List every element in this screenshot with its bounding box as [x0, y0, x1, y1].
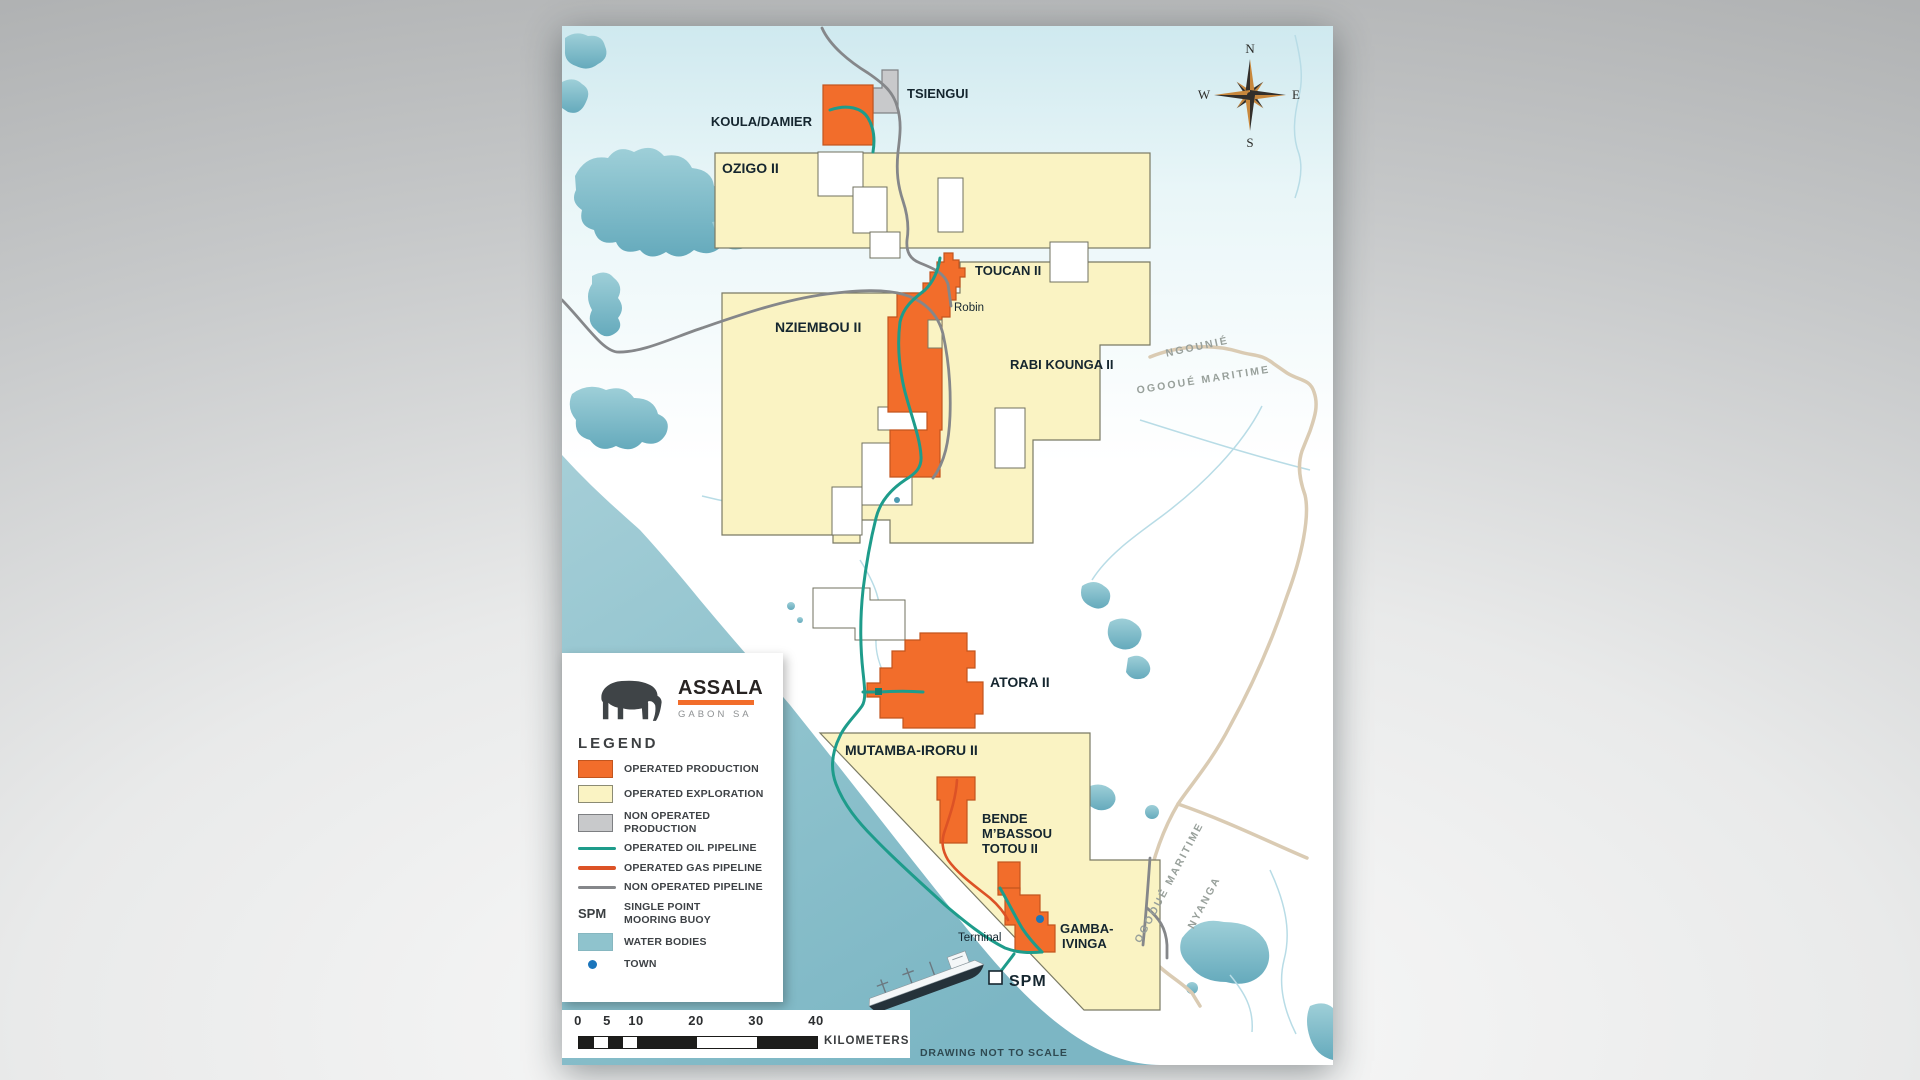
label-gamba-1: GAMBA-: [1060, 921, 1113, 936]
block-ozigo-ii: [715, 153, 1150, 248]
label-ozigo: OZIGO II: [722, 160, 779, 176]
brand-bar: [678, 700, 754, 705]
legend-item-label: TOWN: [624, 958, 657, 971]
scalebar-segment: [608, 1037, 623, 1048]
scalebar-segment: [757, 1037, 817, 1048]
legend-item: TOWN: [578, 958, 773, 971]
label-bende-2: M’BASSOU: [982, 826, 1052, 841]
label-koula-damier: KOULA/DAMIER: [711, 114, 813, 129]
legend-item: NON OPERATED PIPELINE: [578, 881, 773, 894]
town-dot-gamba: [1036, 915, 1044, 923]
legend-item: SPMSINGLE POINT MOORING BUOY: [578, 901, 773, 926]
scalebar-tick: 20: [688, 1013, 703, 1028]
brand-subtitle: GABON SA: [678, 709, 763, 720]
legend-item: OPERATED PRODUCTION: [578, 760, 773, 778]
scalebar-segment: [579, 1037, 594, 1048]
elephant-icon: [592, 673, 670, 725]
label-bende-1: BENDE: [982, 811, 1028, 826]
legend-item-label: NON OPERATED PRODUCTION: [624, 810, 710, 835]
compass-s: S: [1246, 135, 1253, 150]
brand-name: ASSALA: [678, 678, 763, 698]
legend-item: OPERATED GAS PIPELINE: [578, 862, 773, 875]
legend-item: OPERATED EXPLORATION: [578, 785, 773, 803]
block-swatch-icon: [578, 814, 624, 832]
label-rabi-kounga: RABI KOUNGA II: [1010, 357, 1114, 372]
legend-item: NON OPERATED PRODUCTION: [578, 810, 773, 835]
spm-symbol: SPM: [578, 906, 624, 921]
block-swatch-icon: [578, 785, 624, 803]
label-gamba-2: IVINGA: [1062, 936, 1107, 951]
label-terminal: Terminal: [958, 932, 1001, 944]
scalebar-segment: [594, 1037, 609, 1048]
scalebar-tick: 5: [603, 1013, 611, 1028]
compass-e: E: [1292, 87, 1300, 102]
scalebar-tick: 40: [808, 1013, 823, 1028]
pipeline-line-icon: [578, 886, 624, 890]
town-dot-icon: [578, 960, 624, 969]
compass-n: N: [1245, 41, 1255, 56]
spm-marker: [989, 971, 1002, 984]
scalebar-tick: 0: [574, 1013, 582, 1028]
label-toucan: TOUCAN II: [975, 263, 1041, 278]
legend-item-label: NON OPERATED PIPELINE: [624, 881, 763, 894]
scalebar-bar: [578, 1036, 818, 1049]
label-tsiengui: TSIENGUI: [907, 86, 968, 101]
legend-item: OPERATED OIL PIPELINE: [578, 842, 773, 855]
assala-logo: ASSALA GABON SA: [592, 673, 773, 725]
legend-items: OPERATED PRODUCTIONOPERATED EXPLORATIONN…: [578, 760, 773, 971]
legend-heading: LEGEND: [578, 735, 773, 752]
scalebar-tick: 10: [628, 1013, 643, 1028]
legend-item: WATER BODIES: [578, 933, 773, 951]
legend-item-label: OPERATED PRODUCTION: [624, 763, 759, 776]
label-nziembou: NZIEMBOU II: [775, 319, 861, 335]
scalebar: 0510203040 KILOMETERS: [562, 1010, 910, 1058]
gabon-licence-map: N S W E TSIENGUI KOULA/DAMIER OZIGO II T…: [562, 26, 1333, 1065]
pipeline-line-icon: [578, 866, 624, 870]
scalebar-segment: [637, 1037, 697, 1048]
block-swatch-icon: [578, 933, 624, 951]
scalebar-tick: 30: [748, 1013, 763, 1028]
label-atora: ATORA II: [990, 674, 1050, 690]
legend-item-label: WATER BODIES: [624, 936, 707, 949]
scalebar-segment: [697, 1037, 757, 1048]
label-mutamba: MUTAMBA-IRORU II: [845, 742, 978, 758]
block-swatch-icon: [578, 760, 624, 778]
pipeline-line-icon: [578, 847, 624, 851]
legend-item-label: OPERATED GAS PIPELINE: [624, 862, 762, 875]
label-bende-3: TOTOU II: [982, 841, 1038, 856]
scalebar-segment: [623, 1037, 638, 1048]
town-dot-rabi: [894, 497, 900, 503]
compass-w: W: [1198, 87, 1211, 102]
legend-panel: ASSALA GABON SA LEGEND OPERATED PRODUCTI…: [562, 653, 783, 1002]
label-robin: Robin: [954, 302, 984, 314]
label-spm: SPM: [1009, 973, 1047, 990]
label-drawing-note: DRAWING NOT TO SCALE: [920, 1047, 1068, 1059]
legend-item-label: SINGLE POINT MOORING BUOY: [624, 901, 711, 926]
scalebar-unit: KILOMETERS: [824, 1035, 909, 1047]
facility-marker: [875, 688, 882, 695]
legend-item-label: OPERATED EXPLORATION: [624, 788, 764, 801]
legend-item-label: OPERATED OIL PIPELINE: [624, 842, 757, 855]
block-mid: [998, 862, 1020, 890]
